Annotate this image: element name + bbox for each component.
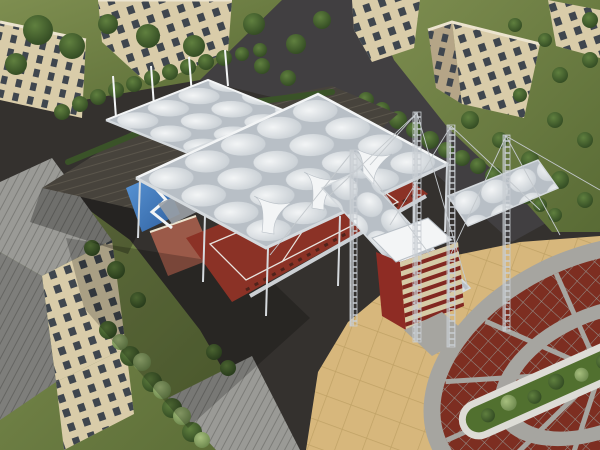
tree	[513, 88, 527, 102]
tree	[286, 34, 306, 54]
lattice-mast	[447, 125, 455, 347]
lattice-mast	[503, 135, 510, 331]
tree	[582, 52, 598, 68]
tree	[5, 53, 27, 75]
tree	[548, 208, 562, 222]
tree	[538, 33, 552, 47]
tree	[126, 76, 142, 92]
scene-render	[0, 0, 600, 450]
tree	[235, 47, 249, 61]
tree	[254, 58, 270, 74]
tree	[577, 192, 593, 208]
lattice-mast	[350, 150, 357, 326]
render-viewport	[0, 0, 600, 450]
tree	[59, 33, 85, 59]
tree	[461, 111, 479, 129]
tree	[98, 14, 118, 34]
tree	[253, 43, 267, 57]
tree	[552, 67, 568, 83]
tree	[108, 82, 124, 98]
tree	[23, 15, 53, 45]
tree	[577, 132, 593, 148]
tree	[136, 24, 160, 48]
tree	[198, 54, 214, 70]
tree	[280, 70, 296, 86]
lattice-mast	[413, 112, 421, 342]
tree	[313, 11, 331, 29]
tree	[194, 432, 210, 448]
tree	[216, 50, 232, 66]
tree	[582, 12, 598, 28]
tree	[72, 96, 88, 112]
tree	[243, 13, 265, 35]
tree	[421, 131, 439, 149]
tree	[162, 64, 178, 80]
tree	[470, 158, 486, 174]
tree	[454, 150, 470, 166]
tree	[508, 18, 522, 32]
tree	[180, 59, 196, 75]
tree	[90, 89, 106, 105]
tree	[183, 35, 205, 57]
tree	[547, 112, 563, 128]
tree	[54, 104, 70, 120]
